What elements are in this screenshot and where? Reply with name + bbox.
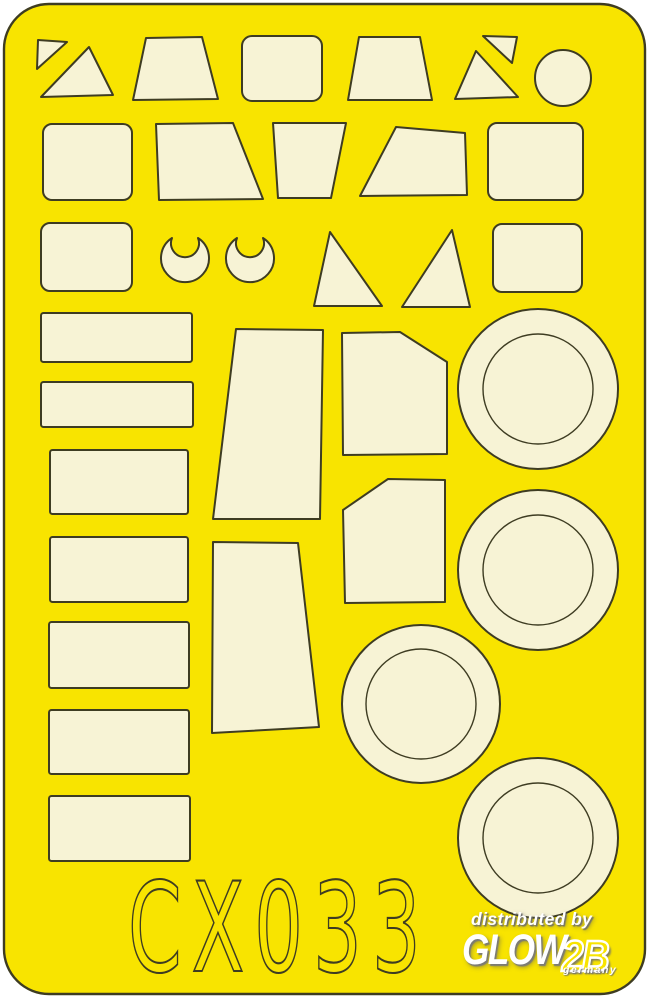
mask-rounded-rect-row2-r	[488, 123, 583, 200]
sheet-code-label: CX033	[128, 857, 431, 1000]
mask-strip-2	[41, 382, 193, 427]
mask-strip-5	[49, 622, 189, 688]
mask-trapezoid-row1-a	[133, 37, 218, 100]
mask-rounded-rect-row3-r	[493, 224, 582, 292]
mask-strip-4	[50, 537, 188, 602]
mask-wheel-ring-1	[458, 309, 618, 469]
masking-sheet-svg: CX033	[0, 0, 650, 1000]
mask-rounded-rect-row3-l	[41, 223, 132, 291]
mask-trapezoid-row1-b	[348, 37, 432, 100]
mask-wheel-ring-2	[458, 490, 618, 650]
mask-circle-row1	[535, 50, 591, 106]
mask-rounded-rect-row2-l	[43, 124, 132, 200]
mask-strip-7	[49, 796, 190, 861]
mask-sheet-scan: CX033 distributed by GLOW 2B germany	[0, 0, 650, 1000]
mask-strip-1	[41, 313, 192, 362]
mask-wheel-ring-4	[458, 758, 618, 918]
mask-strip-3	[50, 450, 188, 514]
mask-rounded-rect-row1	[242, 36, 322, 101]
mask-strip-6	[49, 710, 189, 774]
